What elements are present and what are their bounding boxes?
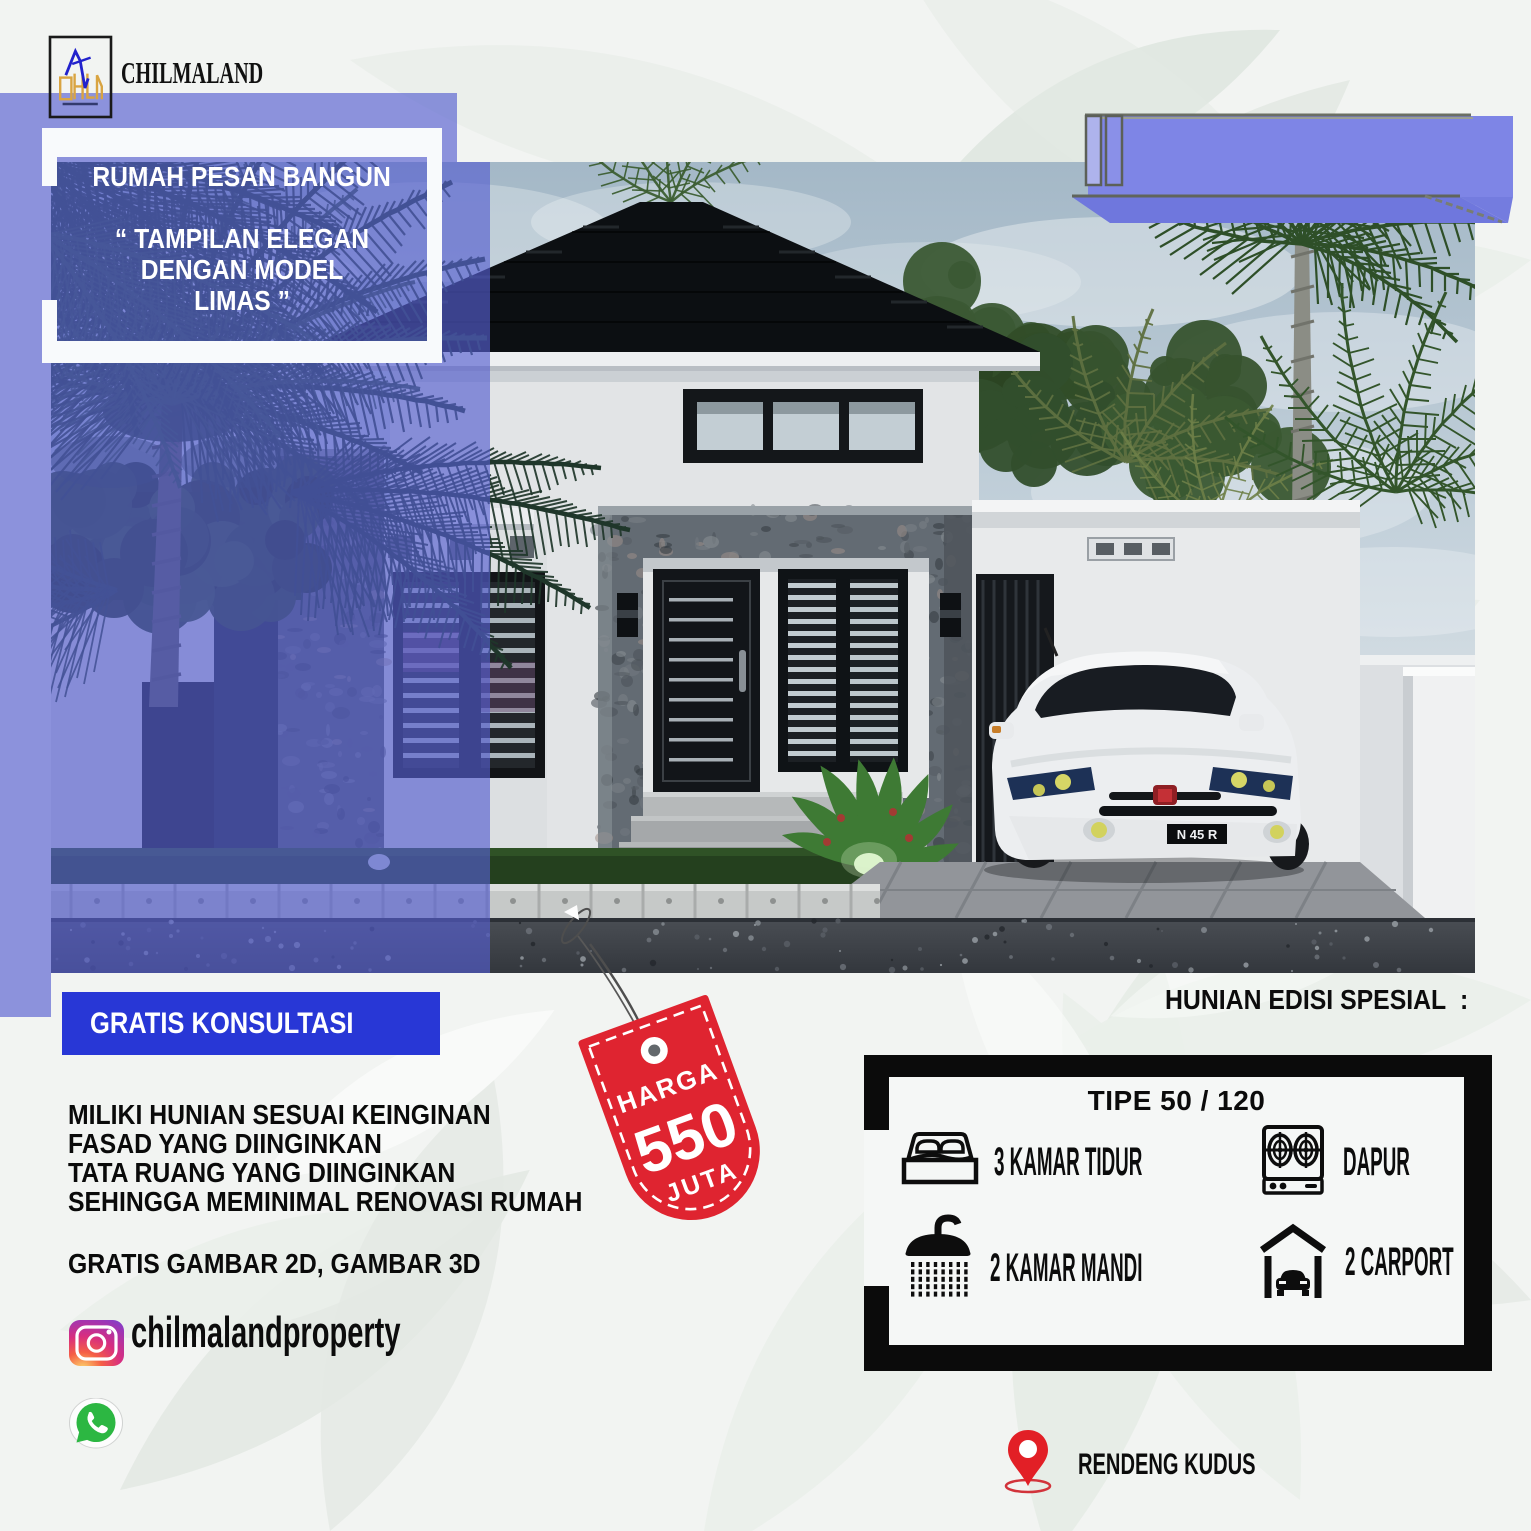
svg-text:N 45 R: N 45 R <box>1177 827 1218 842</box>
